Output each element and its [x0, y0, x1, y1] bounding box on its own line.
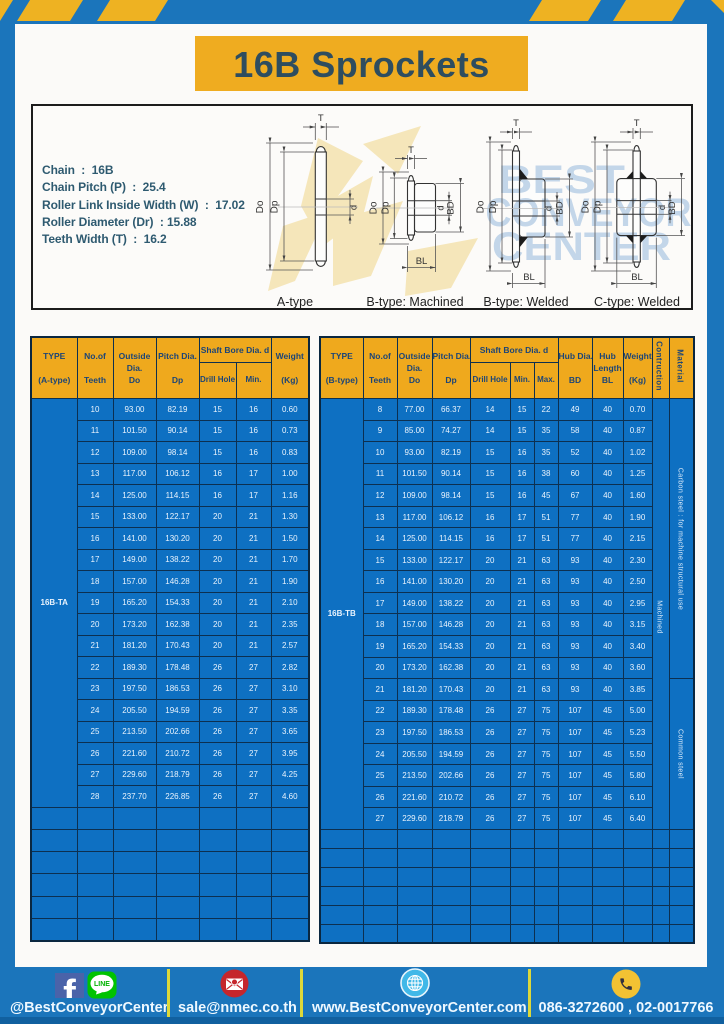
- svg-text:BL: BL: [631, 272, 643, 283]
- svg-text:Do: Do: [369, 201, 380, 214]
- svg-text:C-type: Welded: C-type: Welded: [594, 295, 680, 309]
- svg-text:d: d: [544, 206, 555, 211]
- svg-text:Do: Do: [255, 200, 266, 213]
- svg-text:Dp: Dp: [270, 200, 281, 213]
- svg-text:Dp: Dp: [381, 201, 392, 214]
- svg-text:BD: BD: [667, 201, 678, 214]
- svg-text:Do: Do: [581, 200, 592, 213]
- svg-text:Do: Do: [476, 200, 487, 213]
- svg-text:B-type: Welded: B-type: Welded: [483, 295, 568, 309]
- svg-text:T: T: [513, 118, 519, 129]
- svg-text:T: T: [634, 118, 640, 129]
- svg-text:T: T: [408, 145, 414, 156]
- svg-text:Dp: Dp: [488, 200, 499, 213]
- svg-text:BL: BL: [523, 272, 535, 283]
- svg-text:T: T: [318, 113, 324, 124]
- svg-text:B-type: Machined: B-type: Machined: [366, 295, 463, 309]
- svg-text:A-type: A-type: [277, 295, 313, 309]
- svg-text:BD: BD: [555, 201, 566, 214]
- svg-text:LINE: LINE: [94, 981, 110, 988]
- svg-text:Dp: Dp: [593, 200, 604, 213]
- svg-text:BD: BD: [446, 201, 457, 214]
- svg-text:d: d: [349, 205, 360, 210]
- svg-text:BL: BL: [416, 256, 428, 267]
